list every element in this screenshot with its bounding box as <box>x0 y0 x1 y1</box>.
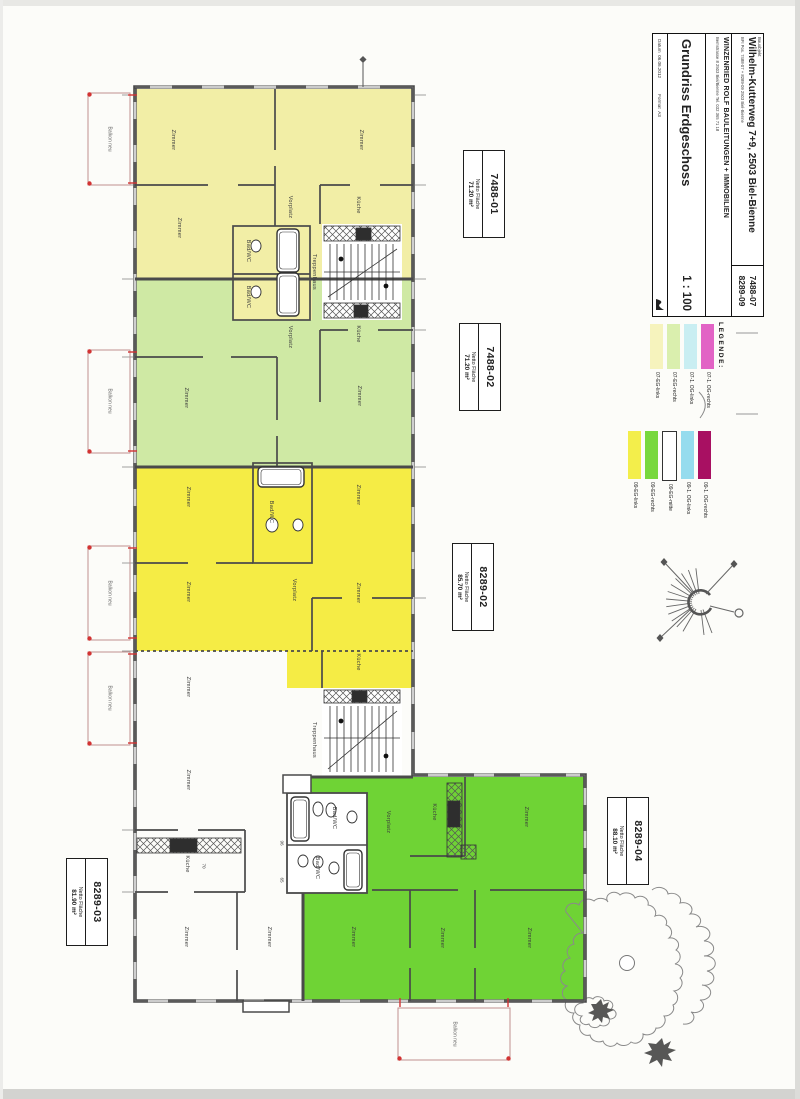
legend-label: 07-EG-links <box>654 372 659 420</box>
room-label: Bad/WC <box>244 286 250 309</box>
room-label: Zimmer <box>354 583 360 604</box>
legend-label: 09-EG-rechts <box>649 482 654 544</box>
apartment-tag-8289-02: 8289-02 Netto Fläche 85.70 m² <box>452 543 494 631</box>
area-value: 88.10 m² <box>610 828 618 854</box>
area-label: Netto Fläche <box>618 826 624 857</box>
room-label: Küche <box>354 653 360 670</box>
area-label: Netto Fläche <box>470 352 476 383</box>
legend-item: 07-EG-links <box>650 324 663 420</box>
legend-item: 07-1. OG-links <box>684 324 697 420</box>
legend-item: 09-1. OG-rechts <box>698 431 711 546</box>
room-label: Zimmer <box>355 386 361 407</box>
area-label: Netto Fläche <box>463 572 469 603</box>
legend-item: 09-1. OG-links <box>681 431 694 546</box>
apartment-tag-7488-01: 7488-01 Netto Fläche 71.20 m² <box>463 150 505 238</box>
legend-label: 07-1. OG-rechts <box>705 372 710 420</box>
legend-swatch <box>684 324 697 369</box>
dimension-label: 70 <box>201 863 206 868</box>
legend-swatch <box>662 431 677 481</box>
scan-edge-bottom <box>0 1089 800 1099</box>
legend-label: 07-EG-rechts <box>671 372 676 420</box>
dimension-label: 96 <box>279 840 284 845</box>
scan-edge-top <box>0 0 800 6</box>
title-block: Bauobjekt Wilhelm-Kutterweg 7+9, 2503 Bi… <box>652 33 764 317</box>
project-address-sub: BFI Pos. 7488-07 + 8289-09 2503 Biel-Bie… <box>740 37 745 262</box>
format-value: A3 <box>658 111 663 117</box>
legend-swatch <box>698 431 711 479</box>
apartment-tag-7488-02: 7488-02 Netto Fläche 71.20 m² <box>459 323 501 411</box>
drawing-scale: 1 : 100 <box>681 275 693 311</box>
room-label: Zimmer <box>184 677 190 698</box>
scanned-floor-plan-sheet: ZimmerZimmerZimmerVorplatzKücheBad/WCBad… <box>0 0 800 1099</box>
room-label: Bad/WC <box>244 240 250 263</box>
room-label: Vorplatz <box>384 811 390 834</box>
firm-contact: Bernstrasse 8 2503 Biel/Bienne Tel. 032 … <box>716 37 721 313</box>
legend-label: 09-EG-mitte <box>667 484 672 546</box>
room-label: Zimmer <box>182 388 188 409</box>
room-label: Küche <box>354 196 360 213</box>
room-label: Zimmer <box>182 927 188 948</box>
apartment-id: 8289-02 <box>471 544 493 630</box>
balcony-label: Balkon neu <box>452 1021 457 1046</box>
area-label: Netto Fläche <box>77 887 83 918</box>
date-label: Datum <box>658 39 663 53</box>
apartment-id: 8289-04 <box>626 798 648 884</box>
room-label: Küche <box>430 803 436 820</box>
room-label: Zimmer <box>349 927 355 948</box>
legend-label: 09-EG-links <box>632 482 637 544</box>
room-label: Zimmer <box>184 770 190 791</box>
legend-title: LEGENDE: <box>717 322 724 369</box>
compass-sun-diagram <box>657 558 744 642</box>
area-value: 71.20 m² <box>462 354 470 380</box>
dimension-label: 65 <box>279 877 284 882</box>
balcony-label: Balkon neu <box>107 580 112 605</box>
project-number-1: 7488-07 <box>748 266 759 316</box>
format-label: Format <box>658 94 663 109</box>
room-label: Zimmer <box>525 928 531 949</box>
area-value: 85.70 m² <box>455 574 463 600</box>
area-label: Netto Fläche <box>474 179 480 210</box>
room-label: Zimmer <box>522 807 528 828</box>
room-label: Zimmer <box>184 582 190 603</box>
firm-name: WINZENRIED ROLF BAULEITUNGEN + IMMOBILIE… <box>722 37 729 313</box>
legend-group-building-9: 09-EG-links09-EG-rechts09-EG-mitte09-1. … <box>628 431 711 546</box>
room-label: Zimmer <box>357 130 363 151</box>
room-label: Zimmer <box>184 487 190 508</box>
legend-swatch <box>628 431 641 479</box>
legend-swatch <box>701 324 714 369</box>
room-label: Vorplatz <box>286 196 292 219</box>
room-label: Küche <box>183 855 189 872</box>
project-numbers: 7488-07 8289-09 <box>732 265 763 316</box>
room-label: Bad/WC <box>267 501 273 524</box>
firm-logo-icon <box>655 298 665 311</box>
legend-group-building-7: 07-EG-links07-EG-rechts07-1. OG-links07-… <box>650 324 714 420</box>
legend-item: 09-EG-rechts <box>645 431 658 546</box>
apartment-id: 8289-03 <box>85 859 107 945</box>
legend-item: 09-EG-mitte <box>662 431 677 546</box>
apartment-id: 7488-01 <box>482 151 504 237</box>
room-label: Küche <box>354 325 360 342</box>
area-value: 71.20 m² <box>466 181 474 207</box>
room-label: Bad/WC <box>313 857 319 880</box>
legend-item: 07-EG-rechts <box>667 324 680 420</box>
legend-item: 07-1. OG-rechts <box>701 324 714 420</box>
room-label: Zimmer <box>354 485 360 506</box>
project-address: Wilhelm-Kutterweg 7+9, 2503 Biel-Bienne <box>746 37 757 262</box>
drawing-title: Grundriss Erdgeschoss <box>679 39 694 275</box>
room-label: Vorplatz <box>286 326 292 349</box>
legend-label: 07-1. OG-links <box>688 372 693 420</box>
object-label: Bauobjekt <box>757 37 762 262</box>
legend-swatch <box>645 431 658 479</box>
apartment-tag-8289-04: 8289-04 Netto Fläche 88.10 m² <box>607 797 649 885</box>
room-label: Vorplatz <box>290 579 296 602</box>
legend-label: 09-1. OG-links <box>685 482 690 544</box>
scan-edge-right <box>795 0 800 1099</box>
legend-swatch <box>681 431 694 479</box>
balcony-label: Balkon neu <box>107 685 112 710</box>
room-label: Zimmer <box>169 130 175 151</box>
room-label: Zimmer <box>438 928 444 949</box>
legend-label: 09-1. OG-rechts <box>702 482 707 544</box>
date-value: 06.06.2012 <box>658 55 663 78</box>
legend-swatch <box>650 324 663 369</box>
legend-swatch <box>667 324 680 369</box>
room-label: Zimmer <box>175 218 181 239</box>
area-value: 81.90 m² <box>69 889 77 915</box>
balcony-label: Balkon neu <box>107 126 112 151</box>
project-number-2: 8289-09 <box>737 266 748 316</box>
room-label: Treppenhaus <box>310 254 316 290</box>
balcony-label: Balkon neu <box>107 388 112 413</box>
apartment-tag-8289-03: 8289-03 Netto Fläche 81.90 m² <box>66 858 108 946</box>
room-label: Zimmer <box>265 927 271 948</box>
room-label: Treppenhaus <box>310 722 316 758</box>
scan-edge-left <box>0 0 3 1099</box>
apartment-id: 7488-02 <box>478 324 500 410</box>
room-label: Bad/WC <box>330 807 336 830</box>
legend-item: 09-EG-links <box>628 431 641 546</box>
